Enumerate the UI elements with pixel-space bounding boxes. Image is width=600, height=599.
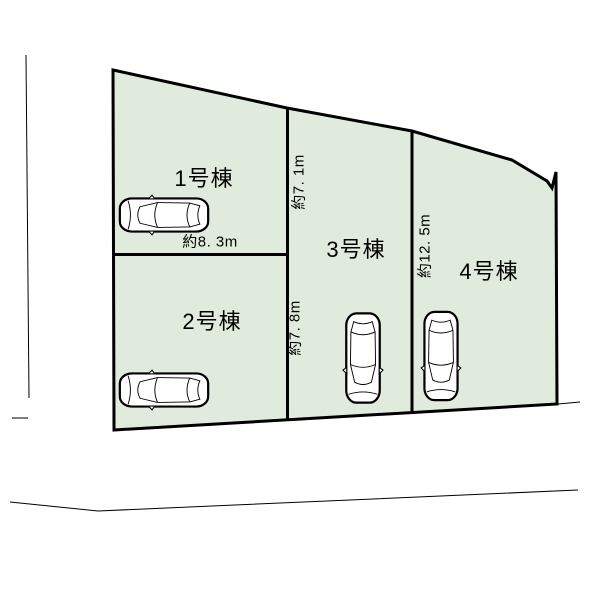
car-top-view-icon [343, 313, 383, 402]
lot1-frontage-measurement: 約8. 3m [182, 235, 238, 250]
lot3-lower-depth-measurement: 約7. 8m [288, 300, 303, 356]
left-road-boundary-line [26, 55, 29, 398]
lot4-depth-measurement: 約12. 5m [418, 214, 433, 278]
lot2-label: 2号棟 [182, 311, 241, 333]
lot1-label: 1号棟 [174, 168, 233, 190]
bottom-road-edge-line [10, 490, 578, 511]
lot4-label: 4号棟 [459, 261, 518, 283]
car-top-view-icon [120, 370, 208, 410]
lot3-label: 3号棟 [326, 239, 385, 261]
car-top-view-icon [120, 195, 208, 235]
site-plan-diagram: 1号棟 2号棟 3号棟 4号棟 約8. 3m 約7. 1m 約7. 8m 約12… [0, 0, 600, 599]
car-top-view-icon [421, 312, 461, 400]
lot3-upper-depth-measurement: 約7. 1m [292, 154, 307, 210]
right-road-edge-line [558, 402, 580, 404]
